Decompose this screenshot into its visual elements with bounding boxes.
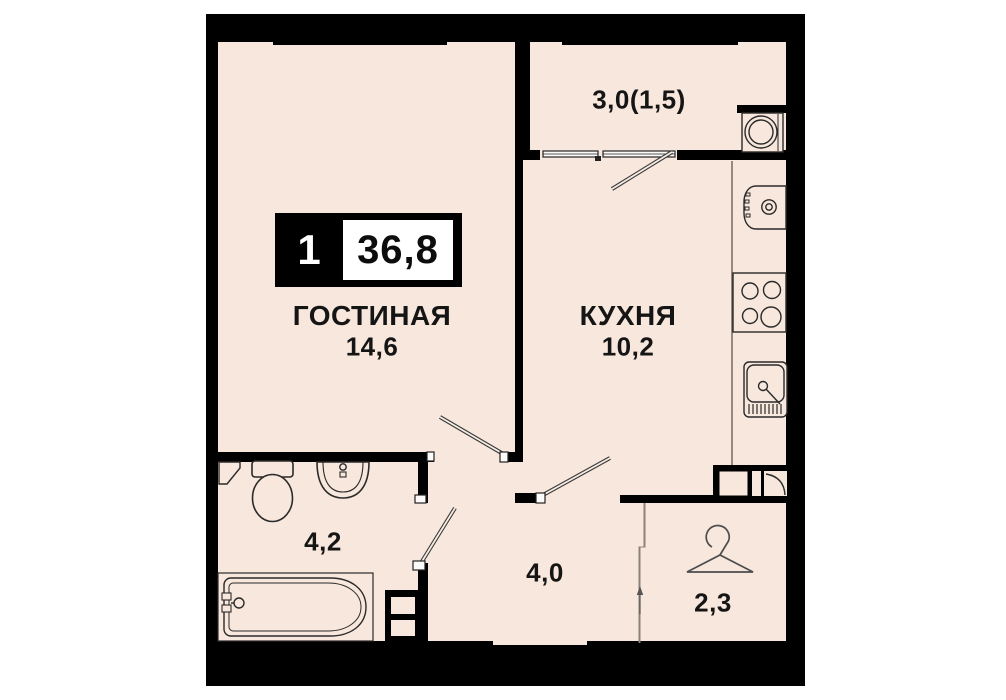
- boiler-icon: [744, 186, 786, 229]
- living-window-band: [273, 42, 447, 45]
- bathroom-area: 4,2: [304, 527, 342, 558]
- kitchen-name: КУХНЯ: [580, 300, 677, 332]
- living-room-area: 14,6: [346, 332, 399, 363]
- kitchen-area: 10,2: [602, 332, 655, 363]
- bathroom-shaft-icon: [385, 590, 428, 641]
- vent-shaft-icon: [713, 465, 787, 503]
- toilet-icon: [252, 461, 293, 522]
- floor-plan-drawing: [0, 0, 1006, 700]
- floor-plan: ГОСТИНАЯ 14,6 КУХНЯ 10,2 3,0(1,5) 4,2 4,…: [0, 0, 1006, 700]
- hallway-area: 4,0: [526, 558, 564, 589]
- entry-threshold: [493, 641, 587, 645]
- living-room-name: ГОСТИНАЯ: [293, 300, 452, 332]
- rooms-count: 1: [275, 213, 343, 287]
- wall-washer-niche: [737, 105, 786, 113]
- bathtub-icon: [218, 573, 373, 641]
- stove-icon: [733, 273, 786, 332]
- balcony-window-band: [562, 42, 738, 45]
- balcony-area: 3,0(1,5): [592, 85, 686, 116]
- wardrobe-area: 2,3: [694, 588, 732, 619]
- washing-machine-icon: [742, 113, 783, 152]
- total-area: 36,8: [343, 220, 453, 280]
- living-door-opening: [434, 452, 506, 462]
- apartment-badge: 1 36,8: [275, 213, 462, 287]
- kitchen-sink-icon: [744, 362, 787, 417]
